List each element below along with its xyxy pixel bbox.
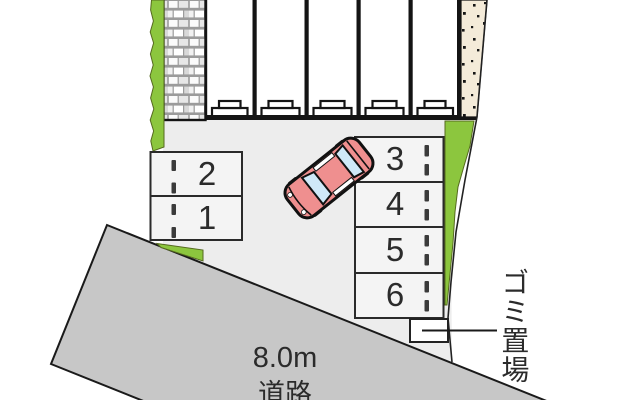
brick-paving — [164, 0, 206, 120]
hedge-left — [150, 0, 164, 151]
parking-layout-diagram: 2 1 3 4 5 6 8.0m 道路 ゴミ置場 — [0, 0, 640, 400]
space-label-2: 2 — [187, 154, 227, 194]
space-label-1: 1 — [187, 198, 227, 238]
road-width-label: 8.0m — [223, 342, 347, 375]
building-wall — [409, 0, 413, 118]
space-label-4: 4 — [375, 184, 415, 224]
space-label-5: 5 — [375, 230, 415, 270]
building-row — [163, 0, 477, 120]
garbage-area-label: ゴミ置場 — [498, 268, 529, 384]
space-label-6: 6 — [375, 275, 415, 315]
site-plan-graphics — [0, 0, 640, 400]
space-label-3: 3 — [375, 139, 415, 179]
building-wall — [253, 0, 257, 118]
road-type-label: 道路 — [223, 372, 347, 400]
building-front-wall — [163, 115, 477, 120]
building-wall — [357, 0, 361, 118]
building-wall — [305, 0, 309, 118]
gravel-strip — [461, 0, 487, 117]
